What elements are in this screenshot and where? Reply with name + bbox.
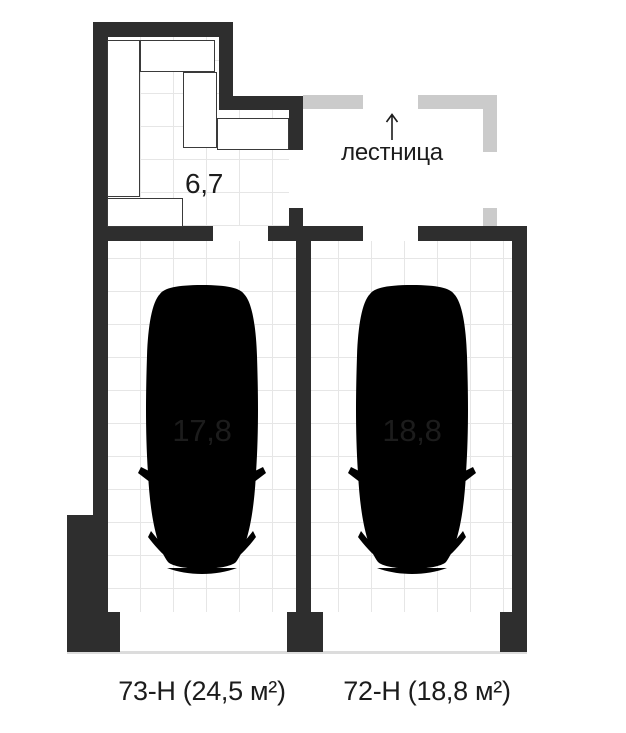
staircase-label: лестница [312, 140, 472, 166]
storage-unit [183, 72, 217, 148]
window-opening-stairs [483, 152, 497, 208]
door-opening-utility-parking [213, 226, 268, 241]
utility-area-label: 6,7 [164, 169, 244, 200]
wall-divider [296, 241, 311, 612]
arrow-up-icon [384, 111, 400, 141]
wall-pier-left [67, 612, 120, 652]
wall-mid-b [268, 226, 363, 241]
stairs-wall-right-a [483, 109, 497, 152]
stairs-wall-top-a [303, 95, 363, 109]
wall-left [93, 22, 108, 612]
parking-right-unit-label: 72-Н (18,8 м²) [287, 677, 567, 707]
storage-unit [217, 118, 289, 150]
door-opening-stairs-parking [363, 226, 418, 241]
storage-unit [107, 40, 140, 197]
parking-left-area-label: 17,8 [142, 414, 262, 448]
wall-mid-a [93, 226, 213, 241]
door-opening-utility-stairs [289, 150, 303, 208]
wall-room-stairs-upper [289, 96, 303, 150]
door-opening-stairs-top [363, 95, 418, 109]
wall-mid-c [418, 226, 527, 241]
storage-unit [140, 40, 215, 72]
storage-unit [107, 198, 183, 227]
parking-right-area-label: 18,8 [352, 414, 472, 448]
stairs-wall-top-b [418, 95, 497, 109]
floor-plan-canvas: лестница 6,7 17,8 18,8 73-Н (24,5 м²) 72… [0, 0, 626, 733]
wall-pier-center [287, 612, 323, 652]
wall-top [93, 22, 233, 37]
stairs-wall-right-b [483, 208, 497, 226]
wall-right [512, 241, 527, 612]
wall-pier-right [500, 612, 527, 652]
